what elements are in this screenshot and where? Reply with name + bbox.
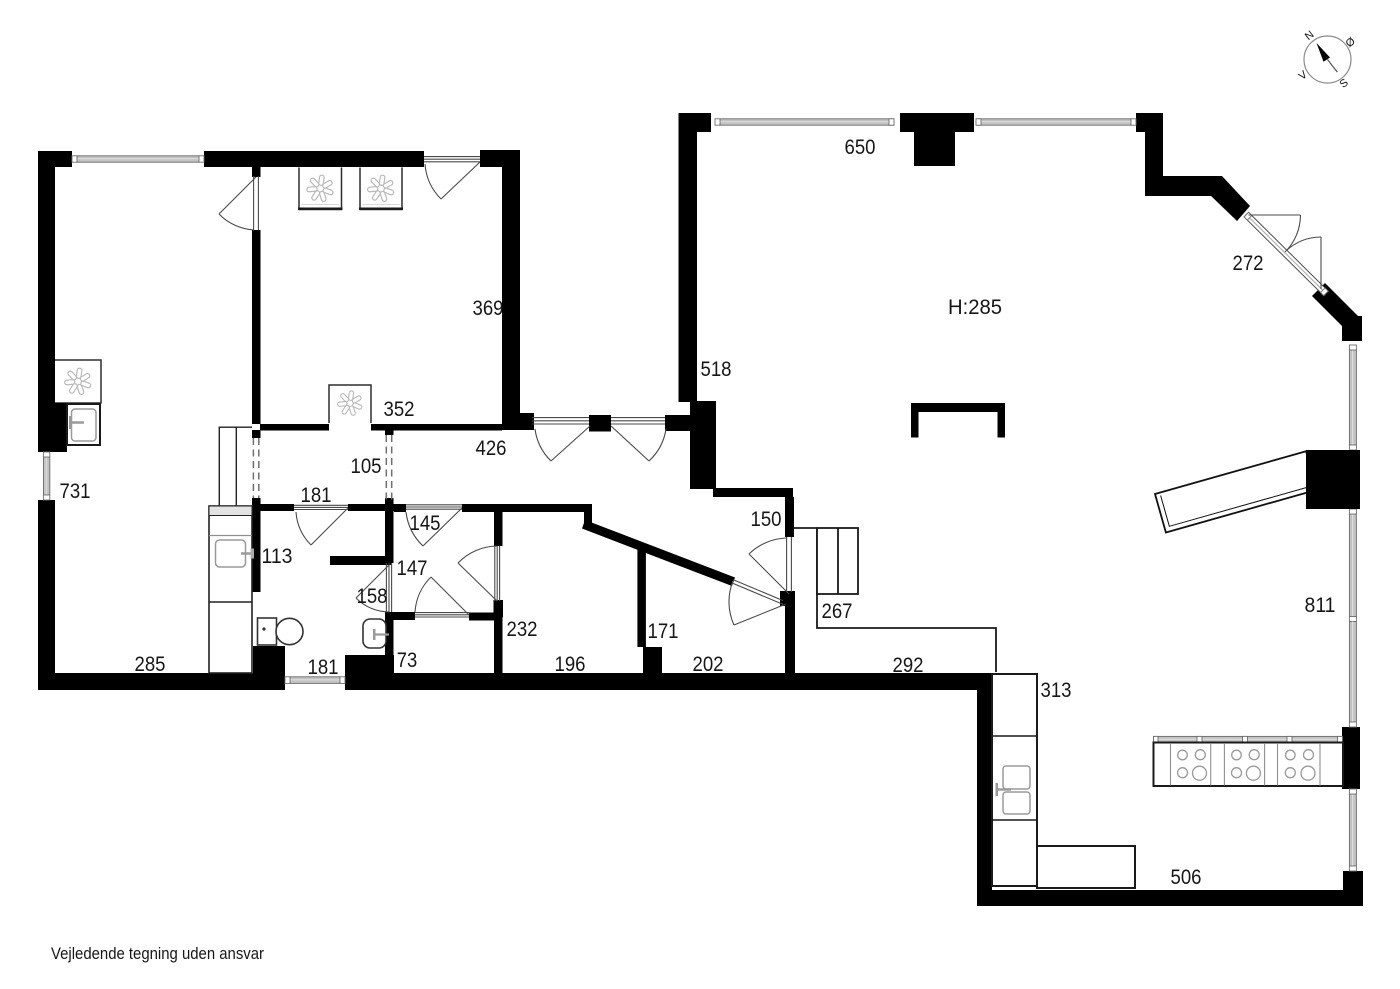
svg-text:506: 506 [1171,865,1202,889]
svg-text:73: 73 [397,648,418,672]
svg-text:650: 650 [845,135,876,159]
svg-text:369: 369 [473,296,504,320]
svg-text:518: 518 [701,357,732,381]
svg-text:426: 426 [476,436,507,460]
svg-text:232: 232 [507,617,538,641]
svg-text:285: 285 [135,652,166,676]
svg-text:147: 147 [397,556,428,580]
svg-text:Vejledende tegning uden ansvar: Vejledende tegning uden ansvar [51,944,264,963]
svg-text:181: 181 [301,483,332,507]
svg-text:313: 313 [1041,678,1072,702]
svg-text:352: 352 [384,397,415,421]
svg-text:150: 150 [751,507,782,531]
svg-text:292: 292 [893,653,924,677]
svg-text:158: 158 [357,584,388,608]
svg-text:105: 105 [351,454,382,478]
svg-text:196: 196 [555,652,586,676]
svg-text:113: 113 [262,544,293,568]
svg-text:202: 202 [693,652,724,676]
svg-text:272: 272 [1233,251,1264,275]
svg-text:H:285: H:285 [948,295,1002,319]
svg-text:145: 145 [410,511,441,535]
svg-text:181: 181 [308,655,339,679]
svg-text:171: 171 [648,619,679,643]
svg-text:811: 811 [1305,593,1336,617]
svg-text:267: 267 [822,599,853,623]
svg-text:731: 731 [60,479,91,503]
